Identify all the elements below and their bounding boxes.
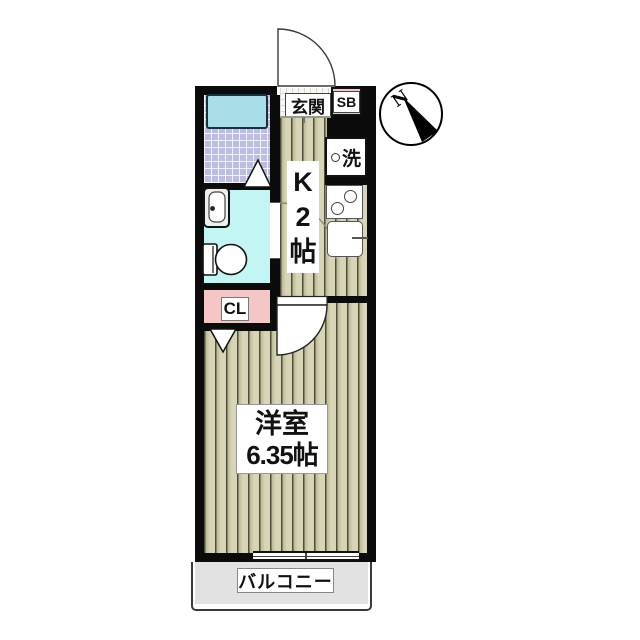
room-door-swing (277, 297, 327, 356)
room-size: 6.35帖 (246, 440, 318, 470)
washing-machine: 洗 (325, 137, 367, 177)
kitchen-label: K 2 帖 (287, 161, 319, 273)
compass: N (380, 83, 442, 145)
stove (326, 185, 363, 219)
kitchen-label-line: K (293, 165, 313, 200)
washbasin-icon (204, 188, 229, 227)
room-label: 洋室 6.35帖 (236, 404, 328, 474)
window-center-tick (305, 553, 307, 559)
faucet-icon (352, 237, 368, 239)
burner-icon (331, 202, 344, 215)
floor-plan: N SB 洗 玄関 (0, 0, 640, 640)
entrance-step-tick (303, 117, 305, 123)
washer-tap-icon (331, 153, 340, 162)
closet-label: CL (221, 297, 249, 321)
kitchen-label-line: 帖 (290, 235, 317, 270)
toilet-icon (203, 244, 247, 275)
washer-label: 洗 (342, 144, 361, 171)
balcony-window (253, 551, 359, 561)
room-name: 洋室 (255, 409, 309, 440)
kitchen-sink (327, 221, 363, 257)
shoe-box-label: SB (333, 91, 360, 113)
entrance-label: 玄関 (285, 93, 331, 117)
kitchen-label-line: 2 (295, 200, 310, 235)
entrance-step-line (280, 116, 331, 118)
bath-door-triangle-icon (244, 160, 271, 187)
balcony-label: バルコニー (237, 568, 334, 593)
burner-icon (344, 190, 357, 203)
closet-door-triangle-icon (210, 329, 236, 352)
entrance-door-arc (278, 29, 335, 86)
shoe-box: SB (331, 87, 362, 116)
